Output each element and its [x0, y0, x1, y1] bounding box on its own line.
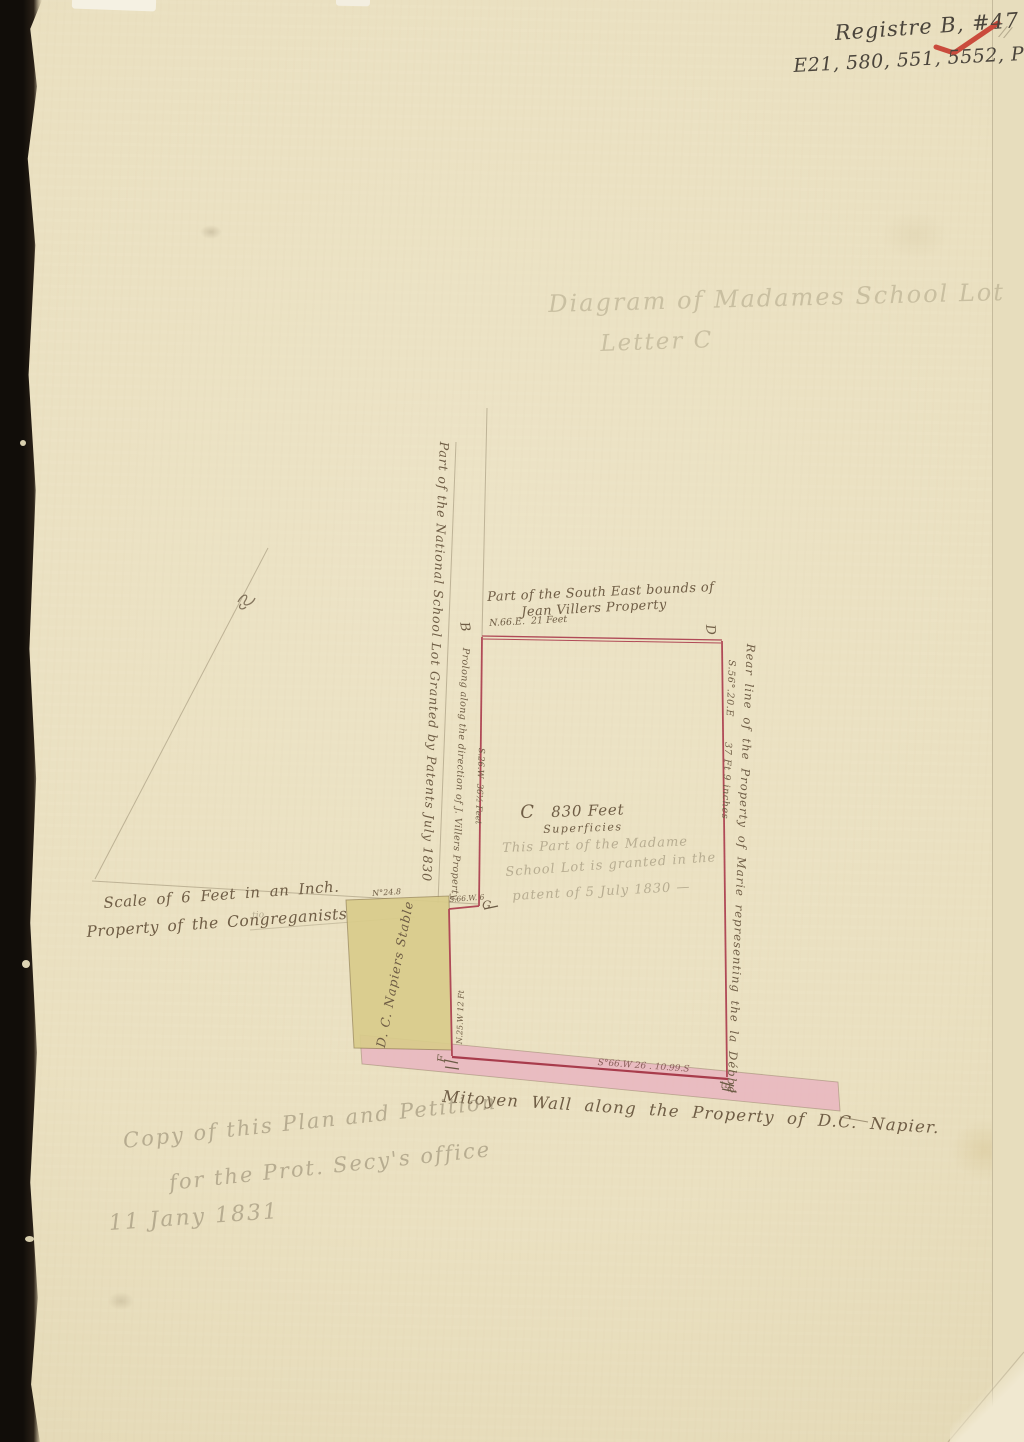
binding-speck	[20, 440, 26, 446]
corner-label-d: D	[702, 624, 716, 636]
lot-area-unit: Superficies	[543, 821, 623, 835]
ink-squiggle-mark	[238, 595, 255, 609]
lot-area-value: 830 Feet	[551, 802, 625, 820]
scanned-plat-page: Registre B, #47 E21, 580, 551, 5552, PB0…	[0, 0, 1024, 1442]
torn-edge-sliver	[336, 0, 370, 6]
binding-speck	[25, 1236, 34, 1242]
corner-label-f: F	[436, 1054, 448, 1063]
binding-speck	[22, 960, 30, 968]
pencil-title-line2: Letter C	[600, 328, 714, 356]
lot-letter: C	[520, 804, 534, 823]
owner-note-insert: tio	[252, 911, 265, 921]
page-fold-corner	[950, 1350, 1024, 1442]
corner-label-b: B	[457, 621, 472, 633]
